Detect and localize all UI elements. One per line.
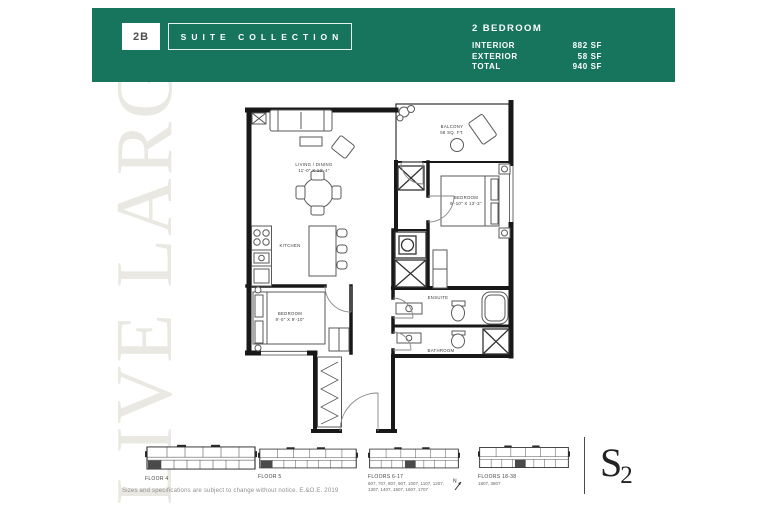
bedroom2-label: BEDROOM (278, 311, 302, 316)
bathroom-label: BATHROOM (428, 348, 455, 353)
keyplan-floors-18-38: FLOORS 18-38 1807, 3807 (478, 442, 570, 487)
compass-icon: N (452, 477, 465, 492)
stat-label: INTERIOR (472, 41, 515, 52)
plan-info: 2 BEDROOM INTERIOR 882 SF EXTERIOR 58 SF… (472, 23, 602, 73)
keyplan-diagram (258, 444, 358, 473)
keyplan-label: FLOOR 4 (145, 476, 257, 482)
collection-label: SUITE COLLECTION (181, 32, 344, 42)
floorplan: LIVING / DINING 11'-0" X 13'-4" BALCONY … (245, 100, 525, 435)
s2-logo: S2 (600, 440, 635, 486)
balcony-label: BALCONY (441, 124, 464, 129)
keyplan-label: FLOOR 5 (258, 474, 358, 480)
living-dining-dims: 11'-0" X 13'-4" (298, 168, 330, 173)
keyplan-floor-5: FLOOR 5 (258, 444, 358, 481)
keyplan-floors-6-17: FLOORS 6-17 607, 707, 807, 907, 1007, 11… (368, 444, 460, 492)
keyplan-label: FLOORS 18-38 (478, 474, 570, 480)
unit-code-badge: 2B (122, 23, 160, 50)
living-dining-label: LIVING / DINING (295, 162, 333, 167)
keyplan-suites: 1807, 3807 (478, 481, 570, 487)
kitchen-label: KITCHEN (280, 243, 301, 248)
stat-row-total: TOTAL 940 SF (472, 62, 602, 73)
keyplan-label: FLOORS 6-17 (368, 474, 460, 480)
compass-n: N (453, 479, 457, 485)
stat-label: EXTERIOR (472, 52, 518, 63)
stat-value: 882 SF (573, 41, 602, 52)
bedroom-dims: 9'-10" X 13'-2" (450, 201, 482, 206)
plan-type: 2 BEDROOM (472, 23, 602, 34)
bedroom-label: BEDROOM (454, 195, 478, 200)
stat-row-exterior: EXTERIOR 58 SF (472, 52, 602, 63)
keyplan-floor-4: FLOOR 4 (145, 441, 257, 483)
unit-code: 2B (133, 31, 149, 43)
logo-sub: 2 (620, 462, 633, 490)
header-banner: 2B SUITE COLLECTION 2 BEDROOM INTERIOR 8… (92, 8, 675, 82)
stat-value: 940 SF (573, 62, 602, 73)
floorplan-drawing: LIVING / DINING 11'-0" X 13'-4" BALCONY … (245, 100, 525, 435)
balcony-dims: 58 SQ. FT. (440, 130, 464, 135)
ensuite-label: ENSUITE (428, 295, 449, 300)
stat-row-interior: INTERIOR 882 SF (472, 41, 602, 52)
keyplan-diagram (145, 441, 257, 475)
disclaimer-text: Sizes and specifications are subject to … (122, 488, 338, 494)
brochure-page: LIVE LARGE 2B SUITE COLLECTION 2 BEDROOM… (0, 0, 760, 505)
collection-box: SUITE COLLECTION (168, 23, 352, 50)
stat-value: 58 SF (578, 52, 602, 63)
keyplan-suites: 607, 707, 807, 907, 1007, 1107, 1207, 13… (368, 481, 454, 492)
keyplan-diagram (368, 444, 460, 473)
stat-label: TOTAL (472, 62, 501, 73)
logo-main: S (600, 440, 622, 485)
footer-divider (584, 437, 585, 494)
keyplan-diagram (478, 442, 570, 473)
bedroom2-dims: 9'-0" X 9'-10" (276, 317, 305, 322)
